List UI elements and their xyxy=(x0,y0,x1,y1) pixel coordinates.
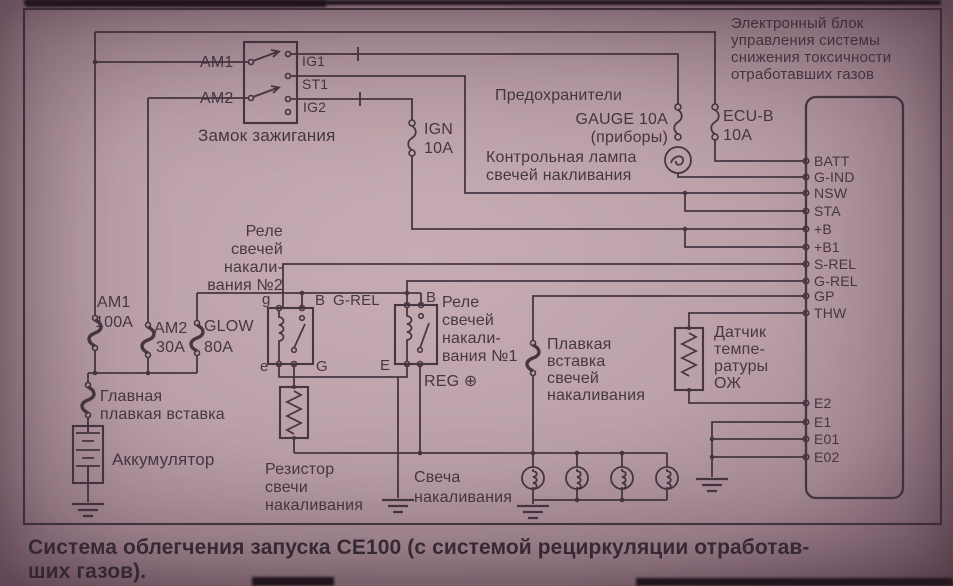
glow-plug-label-line: накаливания xyxy=(414,489,512,506)
relay1-terminal-b: B xyxy=(426,289,436,306)
relay2-label-line: Реле xyxy=(246,223,283,240)
am2-link-name: AM2 xyxy=(154,320,188,337)
wire-lamp-to-gind xyxy=(678,173,806,177)
gauge-fuse-sub: (приборы) xyxy=(591,129,668,146)
ecu-pin-label: GP xyxy=(814,288,835,304)
fuse-gauge-symbol xyxy=(674,104,682,140)
plug-link-label-line: свечей xyxy=(547,370,599,387)
ecu-pin-label: E02 xyxy=(814,449,840,465)
glow-plug-symbols xyxy=(522,467,678,489)
glow-indicator-lamp-symbol xyxy=(665,147,691,173)
relay2-terminal-e: e xyxy=(260,358,269,375)
relay1-terminal-e: E xyxy=(380,357,390,374)
fuses-header: Предохранители xyxy=(495,87,622,104)
relay2-label-line: вания №2 xyxy=(207,277,283,294)
ecu-pin-label: NSW xyxy=(814,185,848,201)
relay1-label-line: свечей xyxy=(442,312,494,329)
ecu-pin-label: THW xyxy=(814,305,847,321)
glow-plug-label-line: Свеча xyxy=(414,469,460,486)
relay2-terminal-G: G xyxy=(316,358,328,375)
plug-link-label-line: Плавкая xyxy=(547,336,612,353)
sensor-label-line: темпе- xyxy=(714,341,765,358)
plug-link-label-line: вставка xyxy=(547,353,606,370)
ecu-title-line: снижения токсичности xyxy=(731,49,891,66)
relay2-label-line: накали- xyxy=(224,259,283,276)
glow-relay1-symbol xyxy=(395,303,437,367)
sensor-labels: Датчик темпе- ратуры ОЖ xyxy=(714,324,768,392)
fuse-ecub-symbol xyxy=(711,104,719,140)
ecu-title-line: управления системы xyxy=(731,32,880,49)
glow-lamp-label-line: свечей накливания xyxy=(486,167,632,184)
main-link-label-line: Главная xyxy=(100,388,162,405)
ignition-switch-symbol xyxy=(244,42,297,123)
battery-label: Аккумулятор xyxy=(112,450,215,469)
scanned-page: Электронный блок управления системы сниж… xyxy=(0,0,953,586)
caption: Система облегчения запуска СЕ100 (с сист… xyxy=(28,536,810,583)
resistor-label-line: свечи xyxy=(265,479,308,496)
ig1-terminal-label: IG1 xyxy=(302,53,325,69)
resistor-label-line: накаливания xyxy=(265,497,363,514)
ground-ecu xyxy=(696,479,728,491)
am1-link-amp: 100A xyxy=(95,314,133,331)
ecu-pin-label: +B xyxy=(814,221,832,237)
main-link-label-line: плавкая вставка xyxy=(100,406,225,423)
ign-fuse-label: IGN xyxy=(424,121,453,138)
ground-glow-plugs xyxy=(517,506,549,518)
st1-terminal-label: ST1 xyxy=(302,76,328,92)
fusible-link-labels: AM1 100A AM2 30A GLOW 80A Главная плавка… xyxy=(95,294,645,423)
ecu-title: Электронный блок управления системы сниж… xyxy=(731,15,891,83)
sensor-label-line: Датчик xyxy=(714,324,767,341)
caption-line: ших газов). xyxy=(28,560,146,583)
ecu-pin-label: E1 xyxy=(814,414,832,430)
ecu-pin-label: BATT xyxy=(814,153,850,169)
relay1-label-line: накали- xyxy=(442,330,501,347)
ground-battery xyxy=(72,504,104,516)
resistor-labels: Резистор свечи накаливания xyxy=(265,461,363,514)
battery-symbol xyxy=(73,417,103,483)
ecub-fuse-amp: 10A xyxy=(723,127,752,144)
wiring-diagram: Электронный блок управления системы сниж… xyxy=(0,0,953,586)
caption-line: Система облегчения запуска СЕ100 (с сист… xyxy=(28,536,810,559)
grel-wire-label: G-REL xyxy=(333,292,380,309)
resistor-label-line: Резистор xyxy=(265,461,334,478)
relay2-label-line: свечей xyxy=(231,241,283,258)
glow-resistor-symbol xyxy=(280,385,308,440)
am2-link-amp: 30A xyxy=(156,339,185,356)
am1-terminal-label: AM1 xyxy=(200,54,234,71)
ecu-pin-label: G-REL xyxy=(814,273,858,289)
gauge-fuse-label: GAUGE 10A xyxy=(575,111,668,128)
relay2-terminal-b: B xyxy=(315,292,325,309)
ecu-pin-label: E01 xyxy=(814,431,840,447)
fusible-link-glow xyxy=(191,321,203,356)
ecu-pin-label: S-REL xyxy=(814,256,856,272)
ecu-pin-label: +B1 xyxy=(814,239,840,255)
plug-link-label-line: накаливания xyxy=(547,387,645,404)
ecu-pin-label: E2 xyxy=(814,395,832,411)
ground-relay-coils xyxy=(382,500,414,512)
am1-link-name: AM1 xyxy=(97,294,131,311)
relay2-terminal-g: g xyxy=(262,291,271,308)
fuse-labels: Предохранители GAUGE 10A (приборы) ECU-B… xyxy=(424,87,774,157)
glow-link-name: GLOW xyxy=(204,318,254,335)
fuse-ign-symbol xyxy=(408,120,416,156)
glow-lamp-label-line: Контрольная лампа xyxy=(486,149,637,166)
ecu-pin-label: STA xyxy=(814,203,841,219)
reg-label: REG ⊕ xyxy=(424,373,478,390)
ig2-terminal-label: IG2 xyxy=(303,99,326,115)
fusible-link-am2 xyxy=(142,323,154,358)
fusible-link-main xyxy=(82,383,94,418)
glow-relay2-symbol xyxy=(268,306,313,367)
ecu-pin-labels: BATT G-IND NSW STA +B +B1 S-REL G-REL GP… xyxy=(814,153,858,465)
fusible-link-glow-plugs xyxy=(527,341,539,376)
wire-ecu-grounds xyxy=(712,422,806,477)
sensor-label-line: ратуры xyxy=(714,358,768,375)
diagram-border xyxy=(24,9,941,524)
glow-lamp-labels: Контрольная лампа свечей накливания xyxy=(486,149,637,184)
ecu-title-line: отработавших газов xyxy=(731,66,874,83)
ecu-pin-label: G-IND xyxy=(814,169,855,185)
wire-glow-plug-bus xyxy=(294,364,667,504)
ignition-switch-label: Замок зажигания xyxy=(198,126,336,145)
relay1-label-line: Реле xyxy=(442,294,479,311)
ecu-title-line: Электронный блок xyxy=(731,15,864,32)
sensor-label-line: ОЖ xyxy=(714,375,741,392)
relay1-labels: G-REL B Реле свечей накали- вания №1 E R… xyxy=(333,289,518,390)
am2-terminal-label: AM2 xyxy=(200,90,234,107)
ecub-fuse-label: ECU-B xyxy=(723,108,774,125)
coolant-temp-sensor-symbol xyxy=(675,326,703,392)
glow-link-amp: 80A xyxy=(204,339,233,356)
glow-plug-labels: Свеча накаливания xyxy=(414,469,512,506)
relay1-label-line: вания №1 xyxy=(442,348,518,365)
ign-fuse-amp: 10A xyxy=(424,140,453,157)
ignition-switch-labels: AM1 AM2 IG1 ST1 IG2 Замок зажигания xyxy=(198,53,336,145)
